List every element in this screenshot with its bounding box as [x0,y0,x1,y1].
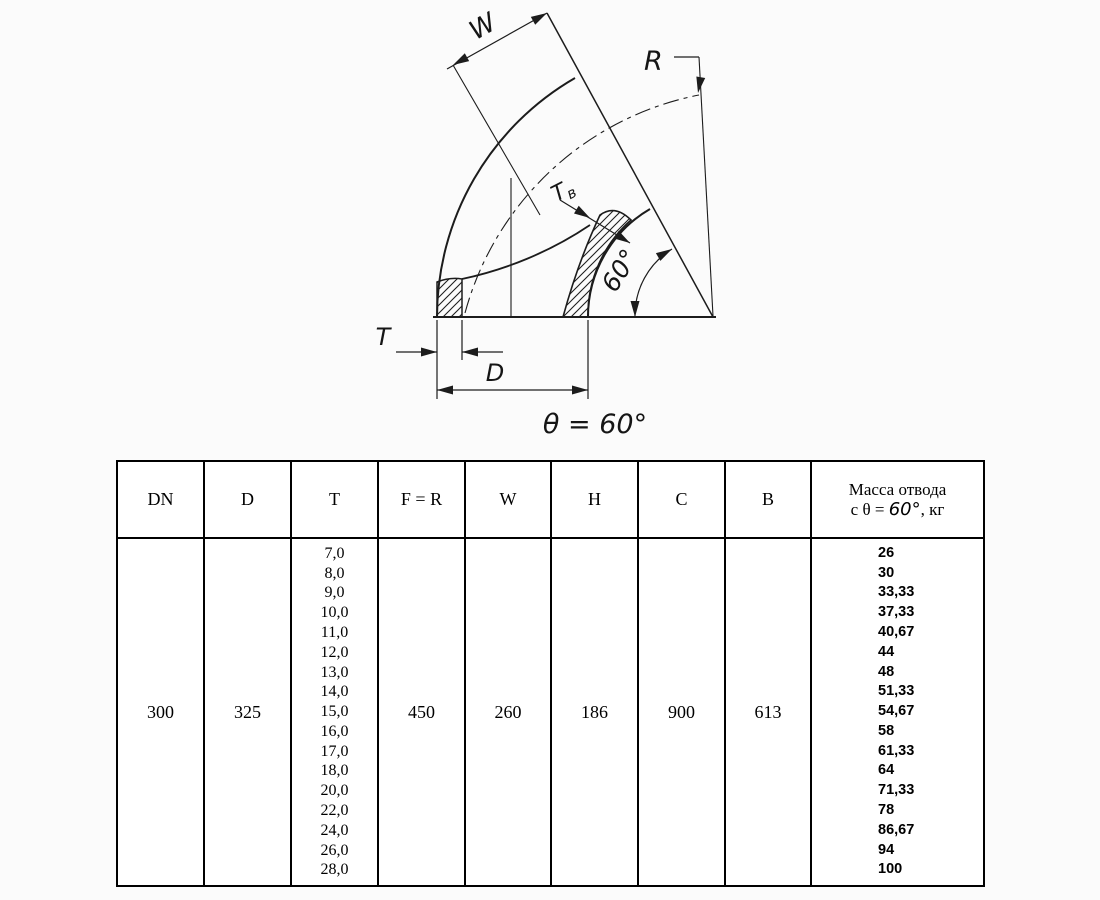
table-list-value: 26,0 [321,841,349,861]
table-list-value: 48 [878,663,894,683]
column-h: H 186 [552,462,639,885]
cell-dn-value: 300 [118,539,203,885]
elbow-outline [433,13,716,317]
table-list-value: 17,0 [321,742,349,762]
column-header-w: W [466,462,550,539]
column-t: T 7,08,09,010,011,012,013,014,015,016,01… [292,462,379,885]
table-list-value: 12,0 [321,643,349,663]
table-list-value: 51,33 [878,682,914,702]
table-list-value: 28,0 [321,860,349,880]
column-d: D 325 [205,462,292,885]
theta-angle-caption: θ = 60° [543,409,647,440]
table-list-value: 24,0 [321,821,349,841]
table-list-value: 61,33 [878,742,914,762]
radius-construction-line [699,57,713,316]
cell-h-value: 186 [552,539,637,885]
elbow-technical-drawing: W R Tв 60° T D θ = 60° [0,0,1100,460]
table-list-value: 100 [878,860,902,880]
column-header-mass: Масса отвода с θ = 60°, кг [812,462,983,539]
table-list-value: 14,0 [321,682,349,702]
table-list-value: 16,0 [321,722,349,742]
column-header-c: C [639,462,724,539]
table-list-value: 20,0 [321,781,349,801]
table-list-value: 30 [878,564,894,584]
table-list-value: 11,0 [321,623,348,643]
table-list-value: 86,67 [878,821,914,841]
cell-d-value: 325 [205,539,290,885]
column-c: C 900 [639,462,726,885]
cell-t-values: 7,08,09,010,011,012,013,014,015,016,017,… [292,539,377,885]
cell-w-value: 260 [466,539,550,885]
table-list-value: 44 [878,643,894,663]
elbow-dimensions-table: DN 300 D 325 T 7,08,09,010,011,012,013,0… [116,460,985,887]
table-list-value: 13,0 [321,663,349,683]
t-dimension-label: T [376,323,393,351]
cell-b-value: 613 [726,539,810,885]
table-list-value: 26 [878,544,894,564]
column-header-d: D [205,462,290,539]
table-list-value: 54,67 [878,702,914,722]
column-header-h: H [552,462,637,539]
column-dn: DN 300 [118,462,205,885]
table-list-value: 58 [878,722,894,742]
cell-fr-value: 450 [379,539,464,885]
cell-c-value: 900 [639,539,724,885]
table-list-value: 9,0 [325,583,345,603]
column-b: B 613 [726,462,812,885]
table-list-value: 94 [878,841,894,861]
column-header-fr: F = R [379,462,464,539]
r-dimension-label: R [644,46,663,77]
table-list-value: 33,33 [878,583,914,603]
table-list-value: 78 [878,801,894,821]
table-list-value: 10,0 [321,603,349,623]
d-dimension-label: D [486,359,504,387]
table-list-value: 18,0 [321,761,349,781]
table-list-value: 37,33 [878,603,914,623]
table-list-value: 7,0 [325,544,345,564]
tv-dimension-label: Tв [547,175,579,209]
wall-section-left-hatch [437,278,462,317]
column-header-dn: DN [118,462,203,539]
elbow-bore-curve [462,225,590,279]
mass-header-angle: 60° [889,499,921,520]
mass-header-line1: Масса отвода [849,480,947,500]
column-w: W 260 [466,462,552,885]
table-list-value: 64 [878,761,894,781]
column-header-b: B [726,462,810,539]
mass-header-line2: с θ = 60°, кг [851,500,945,520]
table-list-value: 40,67 [878,623,914,643]
table-list-value: 71,33 [878,781,914,801]
table-list-value: 8,0 [325,564,345,584]
cell-mass-values: 263033,3337,3340,67444851,3354,675861,33… [812,539,983,885]
table-list-value: 15,0 [321,702,349,722]
column-mass: Масса отвода с θ = 60°, кг 263033,3337,3… [812,462,983,885]
column-header-t: T [292,462,377,539]
column-fr: F = R 450 [379,462,466,885]
table-list-value: 22,0 [321,801,349,821]
